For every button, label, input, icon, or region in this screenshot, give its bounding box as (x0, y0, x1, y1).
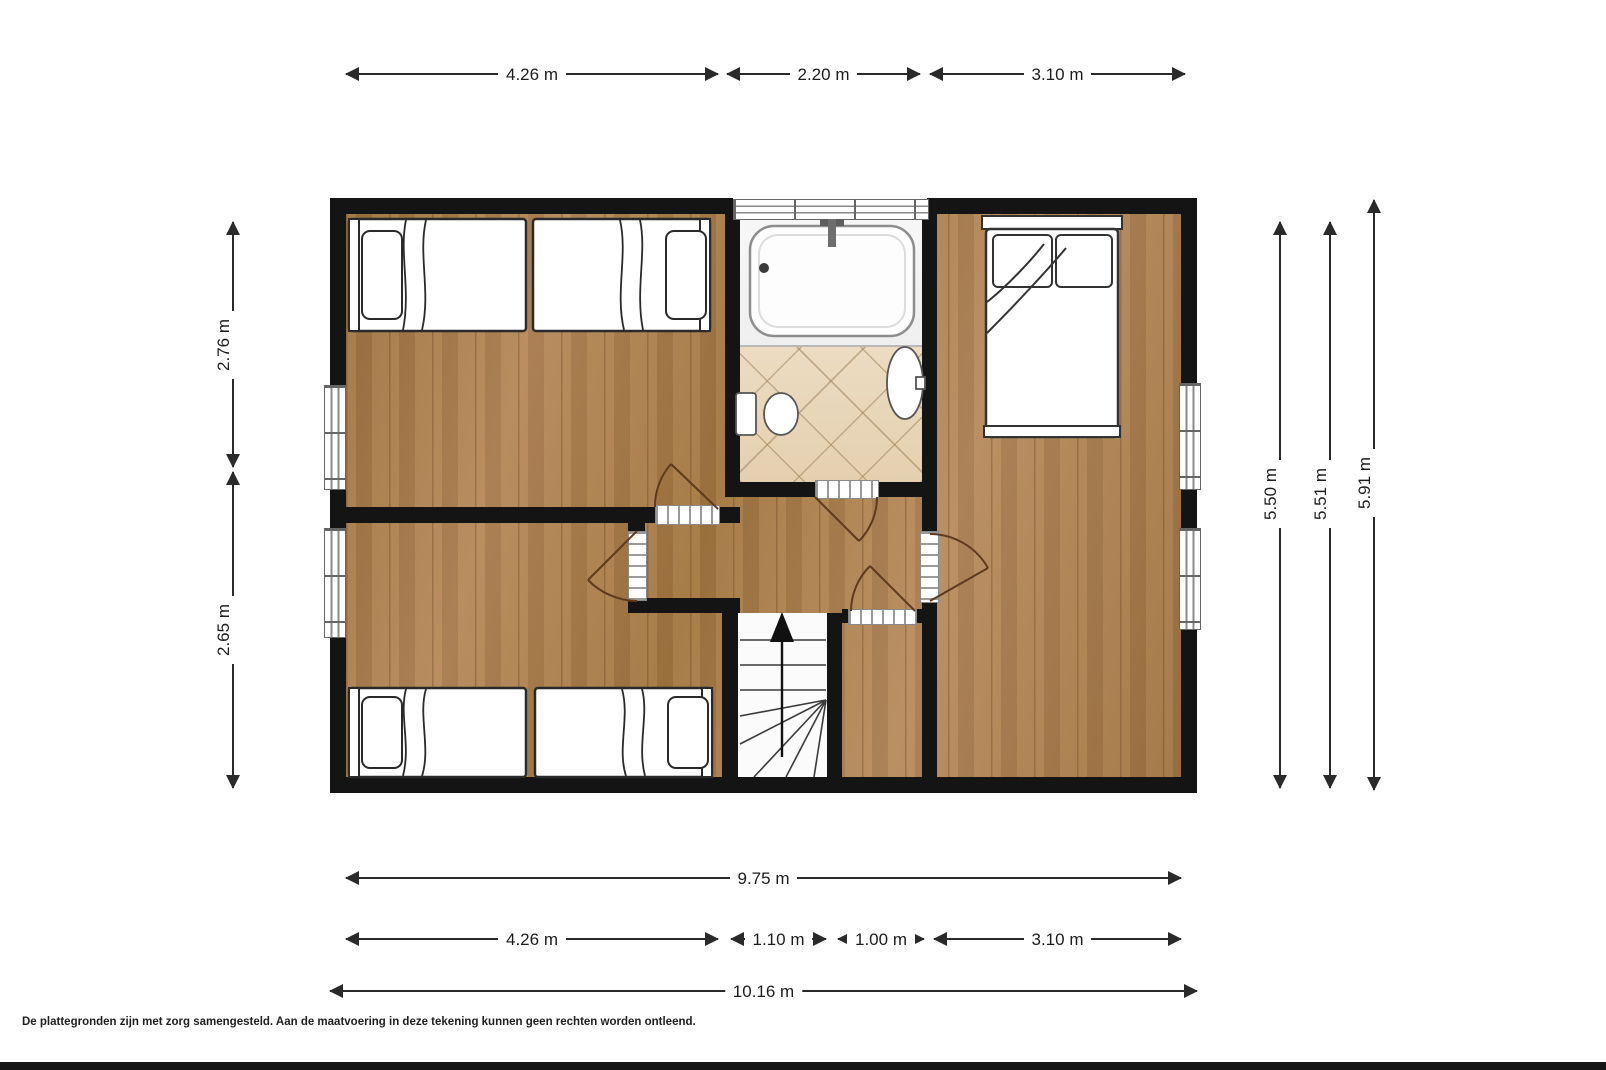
wall-bedroom-divider (330, 507, 655, 523)
arrow-left-icon (929, 67, 943, 81)
stairwell-floor (738, 613, 827, 777)
arrow-right-icon (1168, 871, 1182, 885)
arrow-left-icon (329, 984, 343, 998)
dim-top-bedroom1: 4.26 m (346, 73, 718, 75)
dim-label: 1.00 m (847, 929, 915, 951)
dim-label: 3.10 m (1024, 929, 1092, 951)
arrow-down-icon (1273, 775, 1287, 789)
window-bathroom (733, 199, 929, 220)
window-right-master-lower (1179, 528, 1201, 630)
door-bathroom (815, 480, 879, 499)
arrow-left-icon (730, 932, 744, 946)
dim-label: 4.26 m (498, 64, 566, 86)
dim-left-bedroom1: 2.76 m (232, 222, 234, 467)
arrow-up-icon (226, 471, 240, 485)
wall-outer-bottom (330, 777, 1197, 793)
wall-stairs-left (722, 613, 738, 777)
dim-label: 5.91 m (1354, 449, 1376, 517)
dim-label: 1.10 m (745, 929, 813, 951)
dim-label: 3.10 m (1024, 64, 1092, 86)
dim-label: 2.65 m (213, 596, 235, 664)
wall-outer-top-right (927, 198, 1197, 214)
wall-bathroom-east (922, 214, 937, 497)
door-master-bedroom (920, 531, 939, 603)
window-right-master-upper (1179, 383, 1201, 490)
wall-bathroom-south-left (725, 482, 815, 497)
dim-label: 4.26 m (498, 929, 566, 951)
dim-bottom-stairs: 1.10 m (731, 938, 826, 940)
dim-bottom-closet: 1.00 m (838, 938, 924, 940)
wall-bathroom-west (725, 214, 740, 497)
dim-bottom-outer-total: 10.16 m (330, 990, 1197, 992)
wall-outer-right-lower (1181, 628, 1197, 793)
arrow-left-icon (345, 871, 359, 885)
window-left-bedroom1 (324, 385, 346, 490)
arrow-right-icon (813, 932, 827, 946)
wall-stairs-right (827, 613, 842, 777)
dim-left-bedroom2: 2.65 m (232, 472, 234, 788)
bathroom-tile-floor (740, 345, 922, 482)
wall-bathroom-south-right (877, 482, 937, 497)
arrow-down-icon (226, 775, 240, 789)
arrow-right-icon (1172, 67, 1186, 81)
arrow-up-icon (1367, 199, 1381, 213)
dim-bottom-bedroom2: 4.26 m (346, 938, 718, 940)
wall-outer-right-middle (1181, 488, 1197, 528)
arrow-down-icon (226, 454, 240, 468)
arrow-down-icon (1367, 777, 1381, 791)
door-bedroom2 (628, 531, 647, 601)
door-closet (848, 609, 917, 625)
wall-master-west-upper (922, 497, 937, 531)
arrow-up-icon (226, 221, 240, 235)
wall-outer-left-lower (330, 636, 346, 793)
dim-label: 2.20 m (790, 64, 858, 86)
arrow-left-icon (726, 67, 740, 81)
floorplan-canvas: 4.26 m 2.20 m 3.10 m 2.76 m 2.65 m 5.50 … (0, 0, 1606, 1070)
arrow-right-icon (907, 67, 921, 81)
arrow-right-icon (705, 932, 719, 946)
dim-label: 5.50 m (1260, 460, 1282, 528)
wall-bedroom-divider-stub (718, 507, 740, 523)
window-left-bedroom2 (324, 528, 346, 638)
dim-top-bathroom: 2.20 m (727, 73, 920, 75)
arrow-down-icon (1323, 775, 1337, 789)
arrow-left-icon (933, 932, 947, 946)
arrow-right-icon (1184, 984, 1198, 998)
arrow-left-icon (345, 932, 359, 946)
dim-bottom-master: 3.10 m (934, 938, 1181, 940)
wall-outer-left-upper (330, 198, 346, 385)
door-bedroom1 (655, 505, 720, 525)
dim-right-middle: 5.51 m (1329, 222, 1331, 788)
wall-outer-right-upper (1181, 198, 1197, 383)
bottom-edge-bar (0, 1062, 1606, 1070)
disclaimer-text: De plattegronden zijn met zorg samengest… (22, 1016, 696, 1028)
arrow-up-icon (1323, 221, 1337, 235)
arrow-right-icon (705, 67, 719, 81)
arrow-left-icon (345, 67, 359, 81)
arrow-up-icon (1273, 221, 1287, 235)
wall-master-west-lower (922, 601, 937, 777)
dim-right-outer: 5.91 m (1373, 200, 1375, 790)
dim-label: 10.16 m (725, 981, 802, 1003)
dim-label: 5.51 m (1310, 460, 1332, 528)
wall-outer-top-left (330, 198, 733, 214)
dim-bottom-inner-total: 9.75 m (346, 877, 1181, 879)
dim-label: 2.76 m (213, 311, 235, 379)
dim-right-inner: 5.50 m (1279, 222, 1281, 788)
bathtub-deck (740, 214, 922, 347)
dim-top-master: 3.10 m (930, 73, 1185, 75)
arrow-right-icon (1168, 932, 1182, 946)
dim-label: 9.75 m (730, 868, 798, 890)
